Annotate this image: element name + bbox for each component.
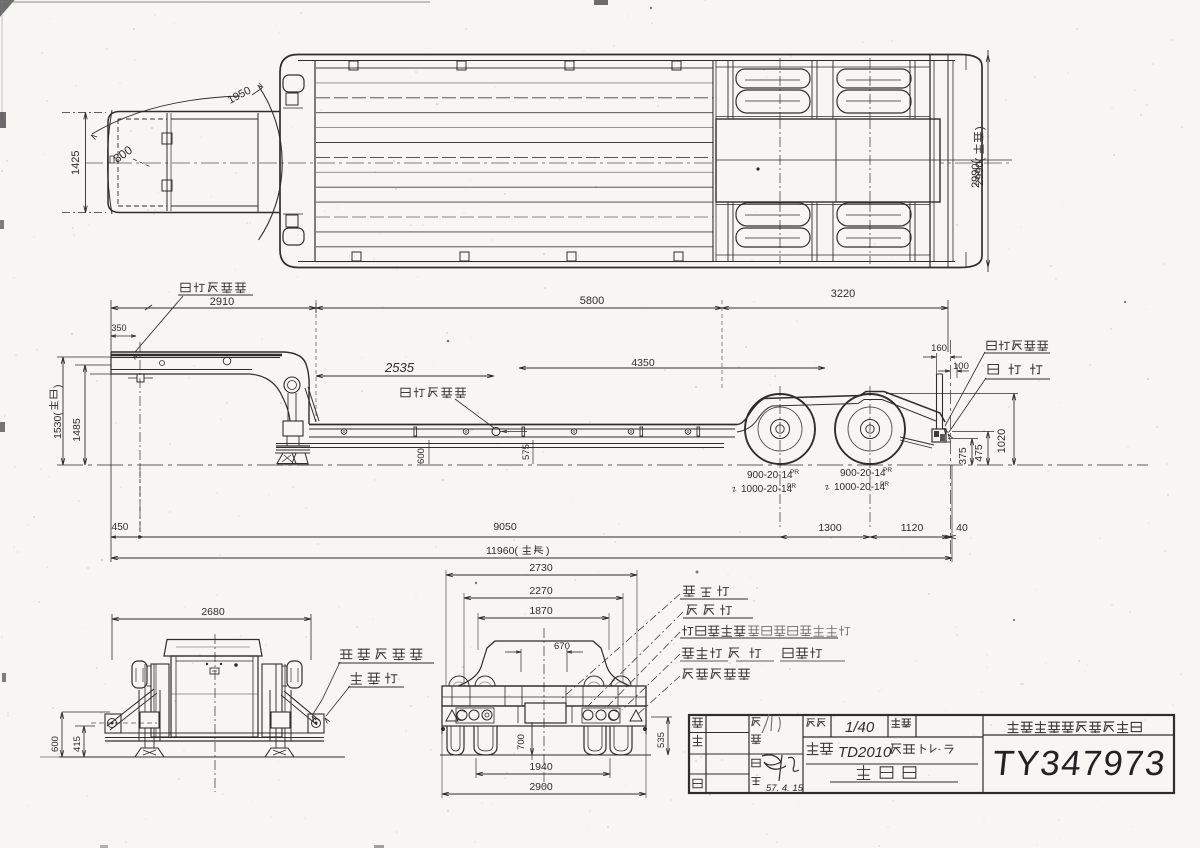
svg-text:535: 535 [656, 732, 667, 748]
svg-text:2535: 2535 [384, 360, 415, 375]
svg-text:57. 4. 15: 57. 4. 15 [766, 783, 804, 794]
svg-text:475: 475 [973, 444, 985, 462]
svg-text:-: - [938, 744, 941, 754]
svg-text:PR: PR [787, 483, 796, 490]
svg-text:): ) [546, 545, 550, 557]
svg-text:PR: PR [883, 467, 892, 474]
svg-text:): ) [52, 385, 64, 389]
svg-text:2900: 2900 [529, 781, 553, 793]
svg-text:1020: 1020 [996, 429, 1008, 453]
svg-text:3220: 3220 [831, 288, 855, 300]
svg-text:1000-20-14: 1000-20-14 [834, 482, 886, 493]
svg-text:1485: 1485 [71, 418, 83, 442]
svg-text:2680: 2680 [201, 606, 225, 618]
svg-text:600: 600 [416, 448, 427, 464]
svg-text:1000-20-14: 1000-20-14 [741, 484, 793, 495]
svg-text:): ) [974, 126, 986, 130]
svg-text:415: 415 [72, 736, 83, 752]
svg-text:100: 100 [953, 361, 969, 372]
svg-text:350: 350 [111, 323, 126, 333]
svg-text:1530(: 1530( [52, 412, 64, 439]
svg-text:670: 670 [554, 641, 570, 652]
svg-text:900-20-14: 900-20-14 [747, 470, 793, 481]
svg-text:4350: 4350 [631, 357, 655, 369]
svg-text:2730: 2730 [529, 562, 553, 574]
svg-text:2910: 2910 [210, 296, 234, 308]
svg-text:575: 575 [521, 444, 532, 460]
svg-text:1870: 1870 [529, 605, 553, 617]
svg-text:5800: 5800 [580, 295, 604, 307]
svg-text:1300: 1300 [818, 522, 842, 534]
svg-text:PR: PR [880, 481, 889, 488]
svg-text:1/40: 1/40 [845, 719, 875, 736]
svg-text:160: 160 [931, 343, 947, 354]
svg-text:11960(: 11960( [486, 545, 518, 557]
svg-text:375: 375 [957, 447, 969, 465]
svg-text:1120: 1120 [901, 522, 924, 534]
svg-text:450: 450 [112, 522, 129, 533]
svg-text:TD2010: TD2010 [838, 744, 892, 761]
svg-text:TY347973: TY347973 [991, 744, 1169, 783]
svg-text:900-20-14: 900-20-14 [840, 468, 886, 479]
svg-text:9050: 9050 [493, 521, 517, 533]
svg-text:2990(: 2990( [974, 158, 986, 186]
svg-text:40: 40 [956, 522, 968, 534]
svg-text:PR: PR [790, 469, 799, 476]
svg-text:2270: 2270 [529, 585, 553, 597]
svg-text:700: 700 [516, 734, 527, 750]
svg-text:1425: 1425 [70, 151, 82, 175]
svg-text:1940: 1940 [529, 761, 553, 773]
svg-text:600: 600 [50, 736, 61, 752]
